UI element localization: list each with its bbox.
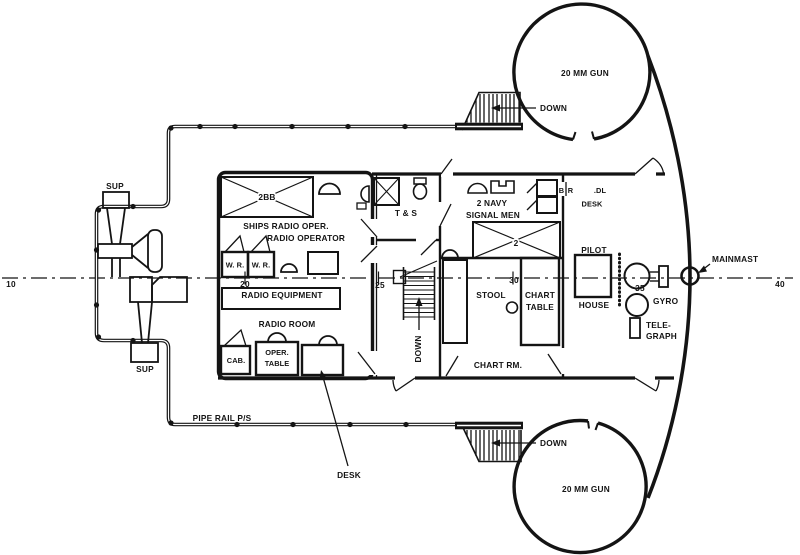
desk-callout-arrow [320, 370, 349, 466]
radio-room-outline [219, 173, 373, 379]
signal-room-label-1: 2 NAVY [477, 198, 508, 208]
radio-room [221, 177, 369, 375]
gun-bottom-label: 20 MM GUN [562, 484, 610, 494]
speaker-horn-bottom [152, 277, 187, 302]
chart-room-label: CHART RM. [474, 360, 522, 370]
oper-table-label-2: TABLE [265, 359, 290, 368]
telegraph-label-2: GRAPH [646, 331, 677, 341]
engine-telegraph [630, 318, 640, 338]
sup-bottom-label: SUP [136, 364, 154, 374]
mainmast-label: MAINMAST [712, 254, 758, 264]
br-label-r: R [568, 186, 574, 195]
stool-circle [507, 302, 518, 313]
gun-top-label: 20 MM GUN [561, 68, 609, 78]
signal-lockers [527, 180, 557, 213]
bridge-deck-plan: 10 20 25 30 35 40 SUP SUP PIPE RAIL P/S … [0, 0, 800, 555]
ts-room [374, 178, 427, 205]
hull-curve [648, 56, 690, 498]
chart-table-label-2: TABLE [526, 302, 554, 312]
wr-locker-1-label: W. R. [226, 261, 245, 270]
chart-table-label-1: CHART [525, 290, 555, 300]
cab-label: CAB. [227, 356, 245, 365]
desk-callout-label: DESK [337, 470, 361, 480]
vent-structure [98, 192, 187, 362]
house-label: HOUSE [579, 300, 610, 310]
frame-20: 20 [240, 279, 250, 289]
gyro-compass [626, 294, 648, 316]
oper-table-label-1: OPER. [265, 348, 289, 357]
frame-35: 35 [635, 283, 645, 293]
desk-unit [308, 252, 338, 274]
frame-30: 30 [509, 275, 519, 285]
bunk-2bb-label: 2BB [258, 192, 275, 202]
radio-operator-label: RADIO OPERATOR [267, 233, 345, 243]
gyro-label: GYRO [653, 296, 679, 306]
down-top-label: DOWN [540, 103, 567, 113]
pilot-label: PILOT [581, 245, 606, 255]
stairway [394, 261, 438, 330]
signal-light [491, 181, 514, 193]
settee [443, 260, 467, 343]
br-label-b: B [559, 186, 564, 195]
ladder-bottom [455, 422, 536, 462]
ladder-top [455, 93, 536, 131]
br-label-dl: .DL [594, 186, 607, 195]
ts-room-label: T & S [395, 208, 417, 218]
frame-10: 10 [6, 279, 16, 289]
bunk-2-label: 2 [514, 238, 519, 248]
toilet [414, 178, 427, 199]
speaker-horn-top [148, 230, 162, 272]
telegraph-label-1: TELE- [646, 320, 671, 330]
pelorus [468, 184, 487, 194]
down-stairs-label: DOWN [413, 335, 423, 362]
radio-equipment-label: RADIO EQUIPMENT [241, 290, 322, 300]
radio-room-label: RADIO ROOM [259, 319, 316, 329]
pilot-house [558, 182, 668, 338]
down-bottom-label: DOWN [540, 438, 567, 448]
deck-plan-svg: 10 20 25 30 35 40 SUP SUP PIPE RAIL P/S … [0, 0, 800, 555]
ships-radio-oper-label: SHIPS RADIO OPER. [243, 221, 328, 231]
shower [374, 178, 399, 205]
sup-top-label: SUP [106, 181, 124, 191]
chair [319, 184, 340, 195]
frame-40: 40 [775, 279, 785, 289]
binnacle [659, 266, 668, 287]
pipe-rail-label: PIPE RAIL P/S [193, 413, 252, 423]
pilot-desk [575, 255, 611, 297]
stool-label: STOOL [476, 290, 505, 300]
chair [281, 264, 297, 272]
mainmast [682, 264, 711, 285]
pilot-desk-box-label: DESK [582, 200, 603, 209]
frame-25: 25 [375, 280, 385, 290]
signal-room-label-2: SIGNAL MEN [466, 210, 520, 220]
cab-locker [221, 330, 250, 374]
radio-desk [302, 336, 343, 375]
wr-locker-2-label: W. R. [252, 261, 271, 270]
sink [361, 186, 369, 202]
